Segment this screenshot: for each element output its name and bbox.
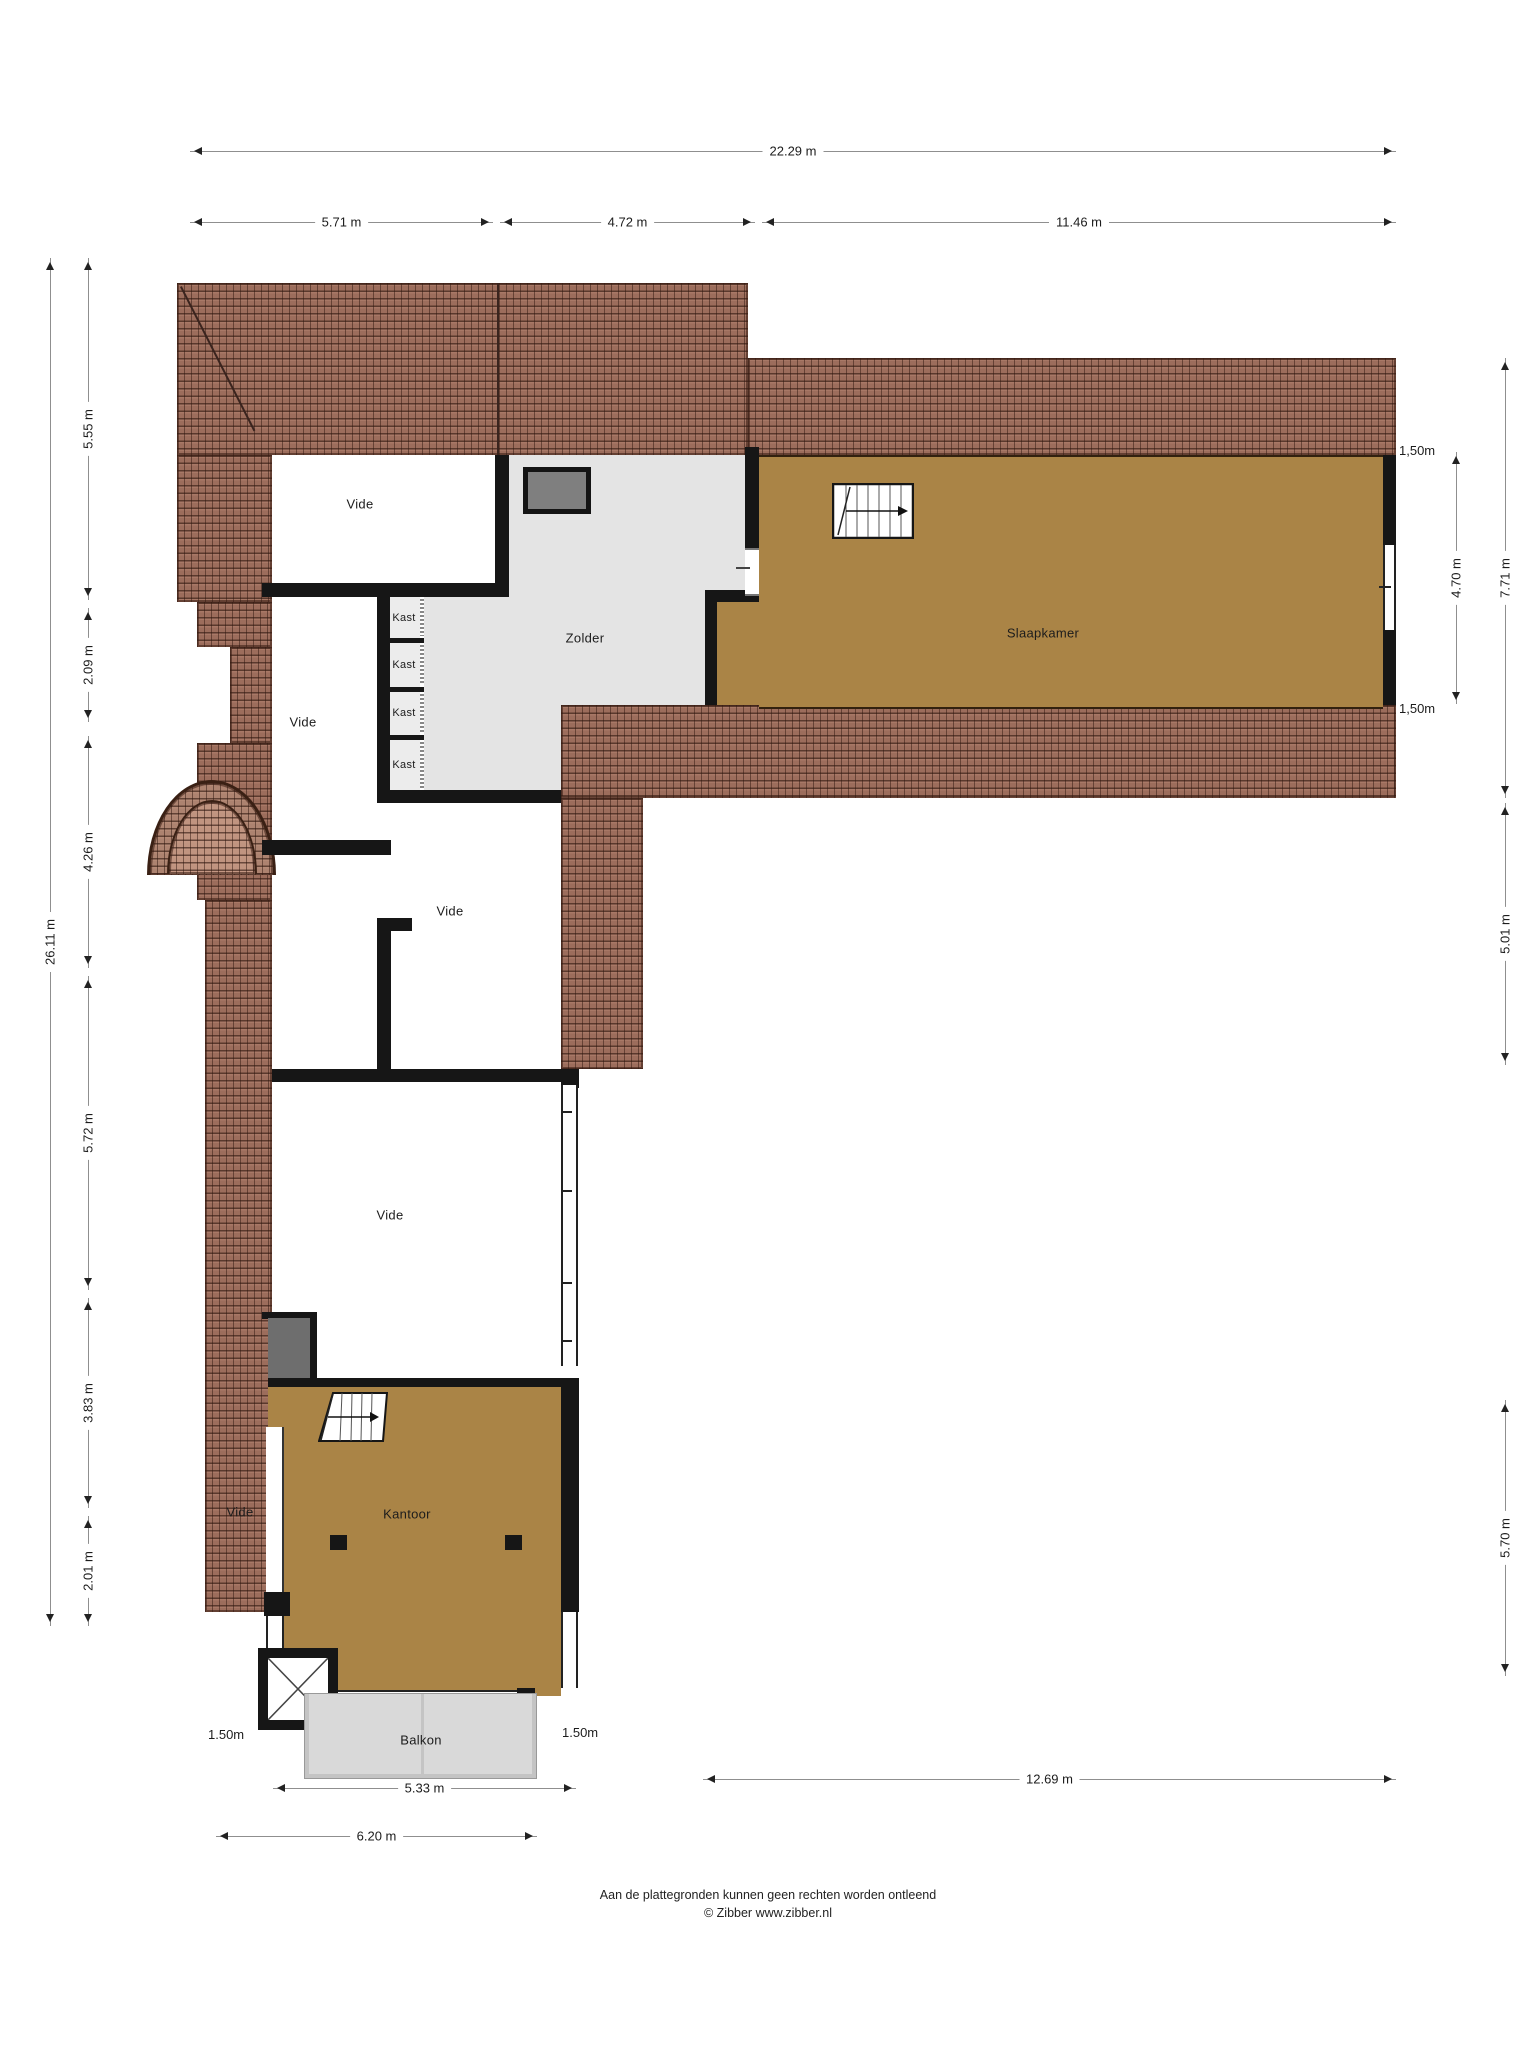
dim-right-bottom: 5.70 m — [1505, 1400, 1506, 1676]
dim-top-mid-label: 4.72 m — [601, 215, 655, 230]
wall-vide1-right — [495, 455, 509, 597]
wall-kantoor-left-block — [264, 1592, 290, 1616]
wall-slaapkamer-right-upper — [1383, 455, 1396, 545]
dim-left-total-label: 26.11 m — [43, 912, 58, 972]
dim-top-left-label: 5.71 m — [315, 215, 369, 230]
dim-right-inner-label: 4.70 m — [1449, 551, 1464, 605]
room-label-kast-2: Kast — [392, 659, 415, 671]
dim-bottom-left-label: 6.20 m — [350, 1829, 404, 1844]
dim-left-6: 2.01 m — [88, 1516, 89, 1626]
dim-top-mid: 4.72 m — [500, 222, 755, 223]
wall-kast-divider-3 — [377, 735, 424, 740]
dim-left-5-label: 3.83 m — [81, 1376, 96, 1430]
vide4-window-column — [561, 1085, 578, 1366]
dim-bottom-left: 6.20 m — [216, 1836, 537, 1837]
kantoor-left-strip — [266, 1427, 284, 1592]
wall-kast-divider-2 — [377, 687, 424, 692]
dim-left-4-label: 5.72 m — [81, 1106, 96, 1160]
wall-kast-left — [377, 597, 390, 803]
roof-wing-top-band — [748, 358, 1396, 455]
kast-4-door — [420, 742, 424, 788]
dim-left-1: 5.55 m — [88, 258, 89, 600]
roof-wing-bottom-band — [561, 705, 1396, 798]
dim-right-mid: 5.01 m — [1505, 803, 1506, 1065]
wall-graybox-right — [310, 1318, 317, 1387]
dim-bottom-right: 12.69 m — [703, 1779, 1396, 1780]
dim-top-right-label: 11.46 m — [1049, 215, 1109, 230]
dim-top-left: 5.71 m — [190, 222, 493, 223]
skylight — [523, 467, 591, 514]
dim-left-2-label: 2.09 m — [81, 638, 96, 692]
room-label-kantoor: Kantoor — [383, 1507, 431, 1522]
dim-right-mid-label: 5.01 m — [1498, 907, 1513, 961]
roof-left-column-upper — [177, 455, 272, 602]
dim-top-right: 11.46 m — [762, 222, 1396, 223]
room-label-kast-1: Kast — [392, 612, 415, 624]
slaapkamer-floor-extension — [717, 602, 759, 705]
dim-right-inner: 4.70 m — [1456, 452, 1457, 704]
room-label-vide-4: Vide — [377, 1208, 404, 1223]
room-label-balkon: Balkon — [400, 1733, 442, 1748]
window-column-tick-1 — [563, 1111, 572, 1113]
room-label-kast-4: Kast — [392, 759, 415, 771]
stairs-kantoor-icon — [318, 1392, 388, 1442]
room-label-slaapkamer: Slaapkamer — [1007, 626, 1079, 641]
dim-left-6-label: 2.01 m — [81, 1544, 96, 1598]
wall-vide1-bottom — [262, 583, 509, 597]
window-column-tick-4 — [563, 1340, 572, 1342]
room-label-vide-1: Vide — [347, 497, 374, 512]
knee-wall-label-top: 1,50m — [1399, 443, 1435, 458]
pillar-kantoor-1 — [330, 1535, 347, 1550]
room-label-zolder: Zolder — [566, 631, 605, 646]
wall-kast-divider-1 — [377, 638, 424, 643]
pillar-kantoor-2 — [505, 1535, 522, 1550]
wall-vide3-partition — [377, 918, 391, 1069]
dim-left-3-label: 4.26 m — [81, 825, 96, 879]
footer-credit: © Zibber www.zibber.nl — [0, 1906, 1536, 1920]
wall-zolder-slaapkamer — [745, 447, 759, 548]
window-column-tick-2 — [563, 1190, 572, 1192]
dim-right-bottom-label: 5.70 m — [1498, 1511, 1513, 1565]
kast-2-door — [420, 645, 424, 685]
wall-vide3-bottom — [272, 1069, 579, 1082]
wall-kantoor-top — [268, 1378, 579, 1387]
room-label-vide-5: Vide — [227, 1505, 254, 1520]
wall-vide2-bottom — [262, 840, 391, 855]
dim-top-total: 22.29 m — [190, 151, 1396, 152]
floor-plan-page: Vide Vide Vide Vide Vide Zolder Slaapkam… — [0, 0, 1536, 2048]
room-label-kast-3: Kast — [392, 707, 415, 719]
roof-middle-column — [561, 798, 643, 1069]
wall-slaapkamer-ext-left — [705, 602, 717, 705]
stairs-slaapkamer-icon — [832, 483, 914, 539]
footer-disclaimer: Aan de plattegronden kunnen geen rechten… — [0, 1888, 1536, 1902]
wall-kantoor-right — [561, 1387, 579, 1612]
zolder-floor-lower — [424, 705, 561, 790]
dim-left-2: 2.09 m — [88, 608, 89, 722]
dim-bottom-balkon: 5.33 m — [273, 1788, 576, 1789]
roof-left-column-notch-side — [230, 647, 272, 743]
kast-1-door — [420, 599, 424, 636]
zolder-floor-main — [424, 590, 705, 705]
dim-left-1-label: 5.55 m — [81, 402, 96, 456]
dim-right-total: 7.71 m — [1505, 358, 1506, 798]
zolder-slaapkamer-door — [745, 548, 759, 596]
wall-vide3-partition-stub — [377, 918, 412, 931]
balkon-label-left: 1.50m — [208, 1727, 244, 1742]
window-column-tick-3 — [563, 1282, 572, 1284]
dim-bottom-balkon-label: 5.33 m — [398, 1781, 452, 1796]
dim-bottom-right-label: 12.69 m — [1019, 1772, 1080, 1787]
utility-graybox — [268, 1318, 310, 1378]
balkon-label-right: 1.50m — [562, 1725, 598, 1740]
wall-slaapkamer-right-lower — [1383, 630, 1396, 705]
dim-left-3: 4.26 m — [88, 736, 89, 968]
kantoor-right-window — [561, 1612, 578, 1688]
dim-top-total-label: 22.29 m — [763, 144, 824, 159]
wall-zolder-bottom — [377, 790, 561, 803]
kantoor-left-window — [266, 1616, 284, 1648]
dim-left-5: 3.83 m — [88, 1298, 89, 1508]
slaapkamer-window-tick — [1379, 586, 1391, 588]
room-label-vide-2: Vide — [290, 715, 317, 730]
door-tick — [736, 567, 750, 569]
roof-left-column-step — [197, 602, 272, 647]
knee-wall-label-bottom: 1,50m — [1399, 701, 1435, 716]
roof-top-band — [177, 283, 748, 455]
room-label-vide-3: Vide — [437, 904, 464, 919]
roof-valley-line — [497, 283, 499, 455]
dim-left-4: 5.72 m — [88, 976, 89, 1290]
kast-3-door — [420, 694, 424, 733]
dim-left-total: 26.11 m — [50, 258, 51, 1626]
dim-right-total-label: 7.71 m — [1498, 551, 1513, 605]
